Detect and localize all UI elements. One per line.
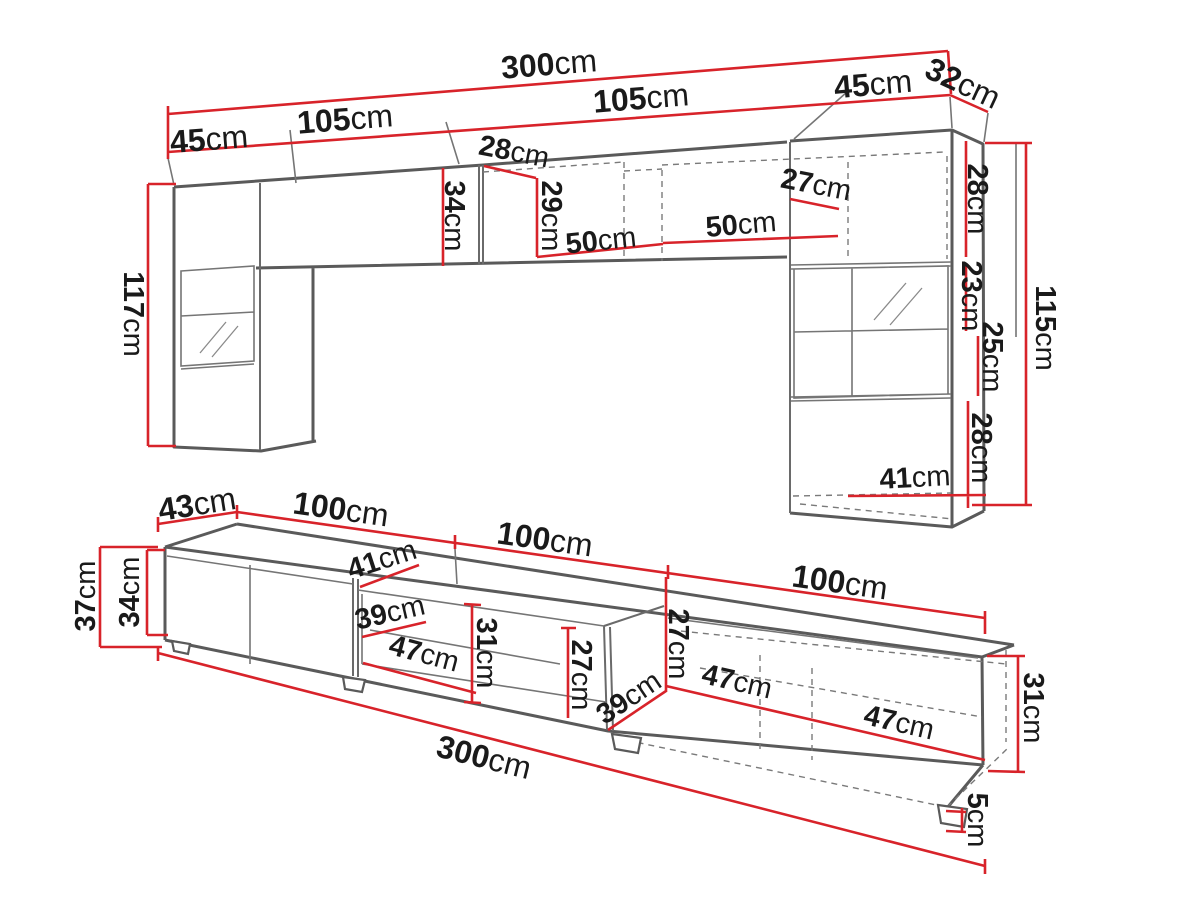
wall-unit-extension-lines [168, 92, 1016, 337]
tv-stand-drawing: 43cm 100cm 100cm 100cm 37cm 34cm 41cm 39… [70, 480, 1049, 874]
wall-unit-shelves-and-doors [181, 262, 951, 401]
dim-bottom-depth-43: 43cm [156, 480, 239, 528]
dim-top-right-shelf-105: 105cm [592, 76, 691, 119]
dim-bottom-section3-100: 100cm [790, 557, 890, 606]
dim-top-shelf-height-34: 34cm [438, 181, 470, 252]
dim-bottom-height-31-right: 31cm [1017, 673, 1049, 744]
wall-unit-outline [174, 130, 984, 527]
dim-top-span-50-left: 50cm [564, 221, 638, 260]
dim-bottom-width-47-middle: 47cm [699, 658, 775, 705]
wall-unit-panel-edges [260, 142, 790, 513]
glass-hatch-icon [200, 283, 922, 357]
dim-bottom-depth-39-right: 39cm [591, 665, 668, 731]
dim-bottom-height-27-middle: 27cm [565, 640, 597, 711]
dim-bottom-total-height-37: 37cm [70, 561, 102, 632]
dim-top-depth-32: 32cm [920, 50, 1006, 116]
dim-right-upper-28: 28cm [961, 164, 993, 235]
dim-bottom-section2-100: 100cm [495, 514, 595, 563]
dim-top-left-shelf-105: 105cm [296, 97, 395, 140]
dim-right-lower-28: 28cm [965, 413, 997, 484]
dim-top-shelf-height-29: 29cm [535, 181, 567, 252]
tv-stand-dimension-lines [100, 505, 1025, 874]
dim-top-overall-width-300: 300cm [500, 42, 599, 85]
dim-right-bottom-41: 41cm [879, 460, 952, 496]
dim-top-span-50-right: 50cm [704, 206, 777, 244]
dim-top-left-cabinet-45: 45cm [169, 118, 250, 160]
dim-bottom-height-27-right: 27cm [662, 609, 694, 680]
wall-unit-dimension-lines [148, 51, 1032, 508]
diagram-canvas: 300cm 45cm 105cm 105cm 45cm 32cm 28cm 34… [0, 0, 1200, 899]
wall-unit-drawing: 300cm 45cm 105cm 105cm 45cm 32cm 28cm 34… [117, 42, 1061, 527]
dim-right-height-115: 115cm [1029, 285, 1061, 370]
dim-bottom-body-height-34: 34cm [114, 557, 146, 628]
dim-top-right-cabinet-45: 45cm [832, 63, 913, 106]
dim-left-height-117: 117cm [117, 271, 149, 356]
dim-right-mid-25: 25cm [976, 322, 1008, 393]
dim-bottom-height-31-left: 31cm [470, 618, 502, 689]
dim-bottom-section1-100: 100cm [291, 484, 391, 533]
dim-bottom-foot-5: 5cm [961, 793, 993, 848]
furniture-dimension-diagram: 300cm 45cm 105cm 105cm 45cm 32cm 28cm 34… [0, 0, 1200, 899]
